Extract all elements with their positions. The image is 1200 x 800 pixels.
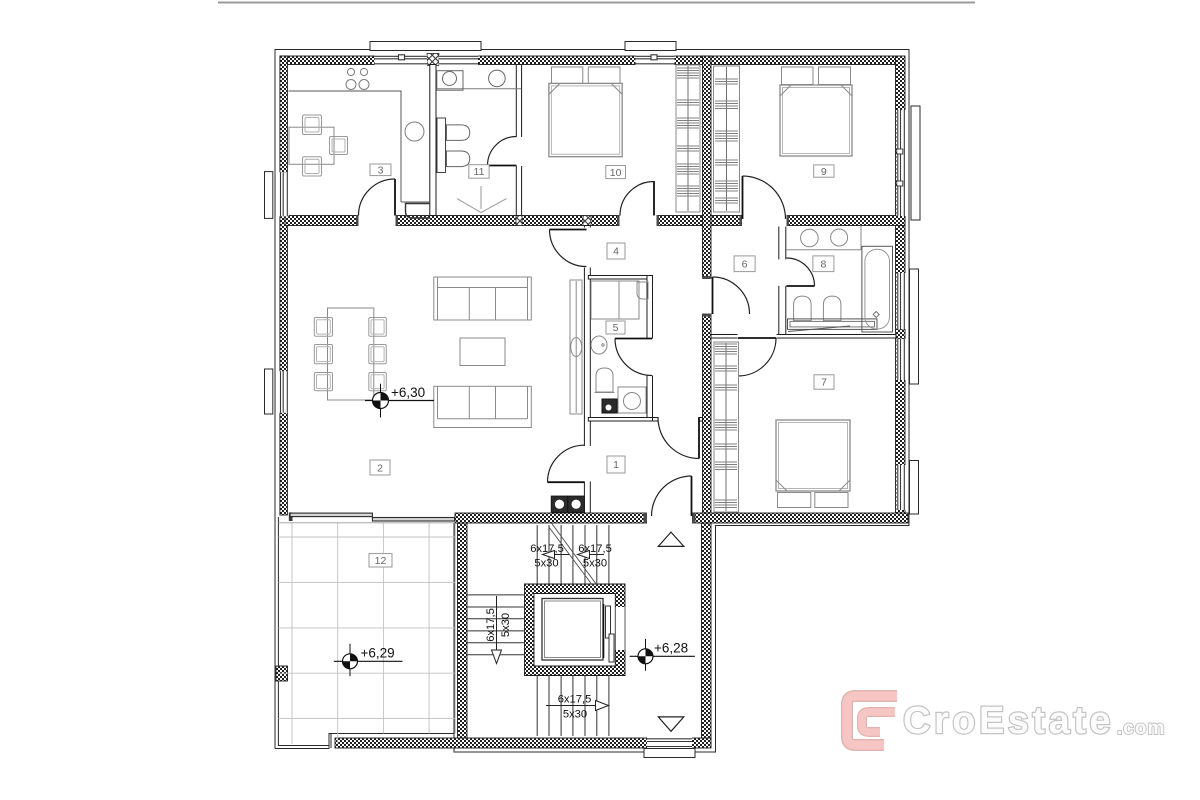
- svg-text:3: 3: [378, 164, 384, 176]
- svg-text:CroEstate: CroEstate: [903, 700, 1114, 742]
- svg-text:4: 4: [613, 246, 619, 258]
- svg-text:12: 12: [375, 555, 387, 567]
- svg-text:6x17,5: 6x17,5: [485, 608, 497, 642]
- svg-text:2: 2: [377, 463, 383, 475]
- svg-text:5x30: 5x30: [563, 709, 587, 721]
- svg-text:+6,28: +6,28: [654, 641, 688, 656]
- svg-text:1: 1: [613, 459, 619, 471]
- svg-text:10: 10: [610, 167, 622, 179]
- svg-text:+6,29: +6,29: [361, 646, 395, 661]
- svg-text:9: 9: [821, 166, 827, 178]
- svg-text:5: 5: [613, 322, 619, 334]
- svg-text:6: 6: [742, 259, 748, 271]
- svg-text:5x30: 5x30: [534, 558, 558, 570]
- svg-text:11: 11: [474, 166, 485, 178]
- svg-text:5x30: 5x30: [500, 613, 512, 637]
- svg-text:5x30: 5x30: [583, 558, 607, 570]
- svg-text:6x17,5: 6x17,5: [558, 694, 592, 706]
- svg-text:7: 7: [821, 377, 827, 389]
- svg-text:.com: .com: [1117, 718, 1165, 739]
- svg-text:+6,30: +6,30: [391, 385, 425, 400]
- svg-text:8: 8: [820, 259, 826, 271]
